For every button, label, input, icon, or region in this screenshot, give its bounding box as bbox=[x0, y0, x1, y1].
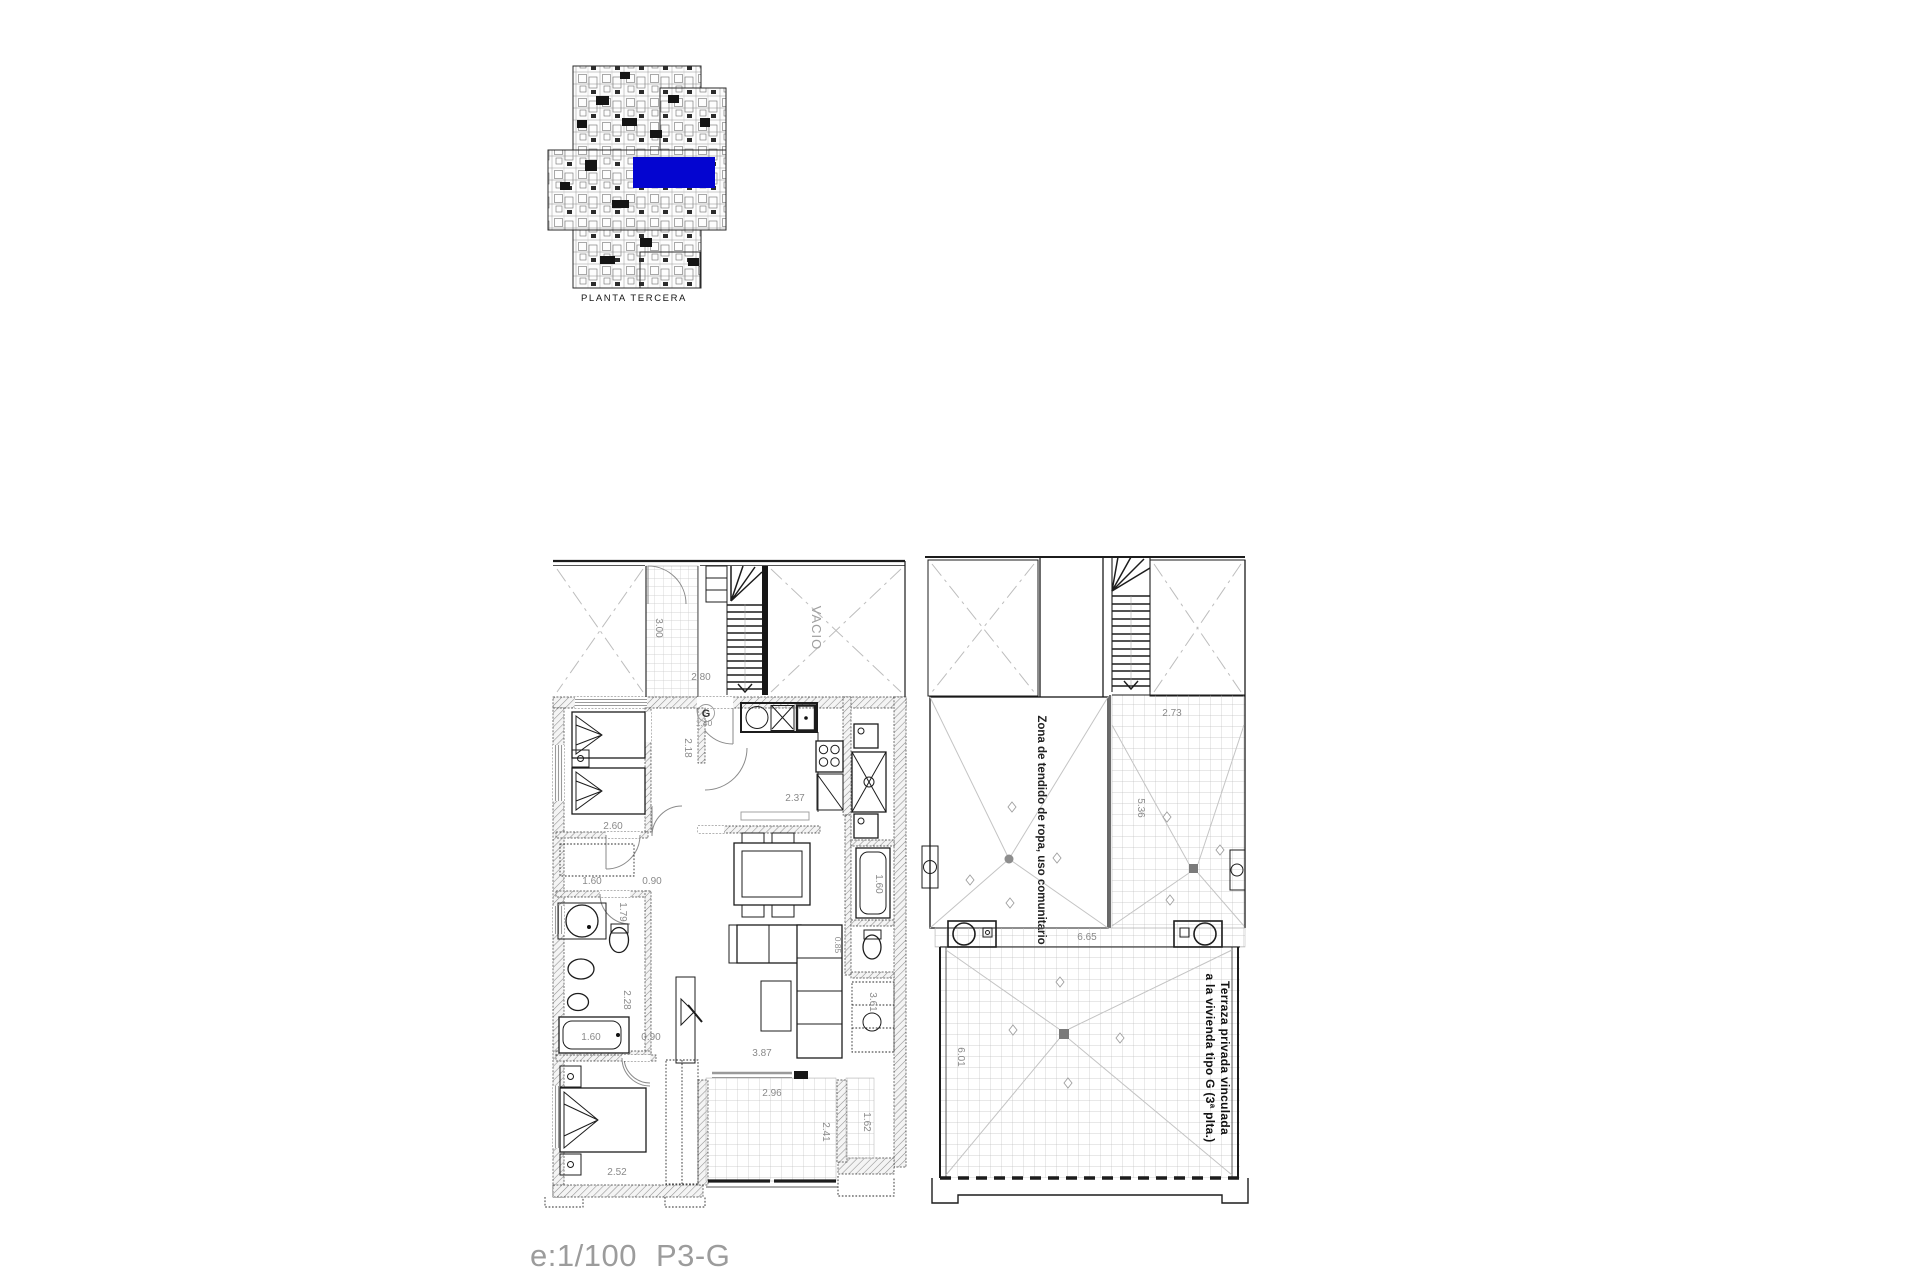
dim-bath-inner-depth: 2.28 bbox=[621, 990, 632, 1010]
dim-closet-width: 1.60 bbox=[582, 876, 602, 887]
dim-entry-width: 1.40 bbox=[696, 718, 713, 728]
apartment-upper-court bbox=[553, 561, 905, 697]
dim-hall-depth: 2.18 bbox=[682, 738, 693, 758]
dim-kitchen-width: 2.37 bbox=[785, 793, 805, 804]
dim-upper-terrace-depth: 5.36 bbox=[1135, 798, 1146, 818]
dim-terrace-depth: 2.41 bbox=[820, 1122, 831, 1142]
void-label: VACIO bbox=[809, 606, 824, 651]
dim-upper-terrace-width: 2.73 bbox=[1162, 708, 1182, 719]
bedroom2-furniture bbox=[560, 1060, 698, 1184]
dim-terrace-depth: 6.01 bbox=[955, 1047, 966, 1067]
roof-upper-structures bbox=[925, 557, 1245, 697]
hall-wardrobe bbox=[560, 844, 634, 876]
dim-bath-depth: 1.79 bbox=[617, 902, 628, 922]
dim-balcony-width: 2.80 bbox=[691, 672, 711, 683]
selected-unit-highlight bbox=[633, 157, 715, 188]
upper-terrace: 2.73 5.36 bbox=[1110, 560, 1245, 928]
dim-sofa-depth: 0.85 bbox=[833, 937, 843, 954]
terrace-label-line2: a la vivienda tipo G (3ª plta.) bbox=[1203, 973, 1217, 1142]
bathroom1-fixtures bbox=[558, 903, 629, 1053]
overview-key-plan: PLANTA TERCERA bbox=[548, 66, 726, 304]
dim-bathtub-length: 1.60 bbox=[581, 1032, 601, 1043]
drying-zone-roof: Zona de tendido de ropa, uso comunitario bbox=[922, 697, 1108, 945]
apartment-plan: 3.00 2.80 VACIO G 1.40 2.18 2.37 2.60 1.… bbox=[545, 561, 906, 1207]
apartment-stairs bbox=[706, 566, 768, 695]
dim-bedroom2-width: 2.52 bbox=[607, 1167, 627, 1178]
bedroom1-furniture bbox=[572, 712, 645, 814]
private-terrace: 6.65 6.01 Terraza privada vinculada a la… bbox=[932, 921, 1248, 1203]
dim-terrace-width: 6.65 bbox=[1077, 932, 1097, 943]
overview-caption: PLANTA TERCERA bbox=[581, 293, 687, 304]
dim-terrace-width: 2.96 bbox=[762, 1088, 782, 1099]
dim-bedroom1-width: 2.60 bbox=[603, 821, 623, 832]
dim-bathtub2-length: 1.60 bbox=[873, 874, 884, 894]
roof-terrace-plan: Zona de tendido de ropa, uso comunitario… bbox=[922, 557, 1248, 1203]
dim-bath-width: 0.90 bbox=[641, 1032, 661, 1043]
sheet-code: P3-G bbox=[656, 1238, 730, 1273]
scale-label: e:1/100 bbox=[530, 1238, 637, 1273]
plan-sheet: PLANTA TERCERA bbox=[0, 0, 1920, 1280]
drying-zone-label: Zona de tendido de ropa, uso comunitario bbox=[1035, 715, 1047, 944]
kitchen-fixtures bbox=[705, 703, 843, 820]
floor-plan-drawing: PLANTA TERCERA bbox=[0, 0, 1920, 1280]
dim-wardrobe-length: 3.61 bbox=[867, 992, 878, 1012]
dim-living-length: 3.87 bbox=[752, 1048, 772, 1059]
dim-patio-depth: 3.00 bbox=[653, 618, 664, 638]
dim-lobby-width: 0.90 bbox=[642, 876, 662, 887]
terrace-label-line1: Terraza privada vinculada bbox=[1218, 981, 1232, 1135]
dim-side-terrace-depth: 1.62 bbox=[861, 1112, 872, 1132]
title-caption: e:1/100 P3-G bbox=[530, 1238, 730, 1273]
